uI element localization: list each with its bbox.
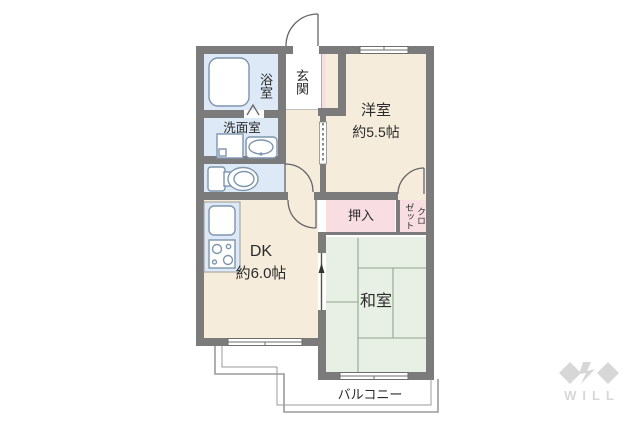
bath-door-gap: [244, 110, 264, 118]
wall-hall-west-bottom: [320, 164, 326, 192]
wall-dk-bottom-r: [302, 338, 326, 346]
entrance-label: 玄関: [288, 60, 310, 104]
brand-logo-text: WILL: [550, 388, 628, 403]
toilet-door-gap: [278, 164, 286, 192]
wall-dk-japanese-top: [318, 235, 326, 253]
wall-mid-h-left: [204, 192, 288, 200]
wall-entrance-left: [278, 46, 286, 164]
washroom-label: 洗面室: [204, 119, 280, 137]
wall-dk-bottom-l: [196, 338, 228, 346]
western-room-size: 約5.5帖: [326, 122, 426, 142]
wall-japanese-bottom-l: [318, 372, 340, 380]
floorplan-canvas: 浴室 洗面室 玄関 洋室 約5.5帖 押入 クロ ゼット DK 約6.0帖 和室…: [0, 0, 640, 427]
dk-label: DK 約6.0帖: [204, 240, 318, 285]
entrance-swing-door: [286, 14, 318, 46]
wall-right: [426, 46, 434, 380]
bath-label: 浴室: [252, 64, 274, 108]
wall-mid-h-right: [314, 192, 398, 200]
balcony-label: バルコニー: [300, 386, 440, 405]
hall-dk-door-gap: [288, 192, 314, 200]
dk-japanese-sliding-door: [319, 253, 325, 310]
western-room-top-window: [360, 47, 408, 54]
wall-oshiire-bottom-line: [318, 232, 426, 235]
wall-bath-bottom-l: [204, 110, 244, 118]
hallway: [286, 110, 320, 192]
room-toilet: [204, 164, 278, 192]
closet-door-gap: [398, 192, 426, 200]
dk-bottom-window: [228, 339, 302, 346]
brand-watermark: WILL: [550, 358, 628, 404]
japanese-room-bottom-window: [340, 373, 408, 380]
wall-washroom-bottom: [204, 156, 286, 164]
dk-name: DK: [204, 240, 318, 263]
brand-logo-mark: [550, 358, 628, 388]
wall-japanese-bottom-r: [408, 372, 434, 380]
western-room-label: 洋室 約5.5帖: [326, 100, 426, 142]
oshiire-label: 押入: [326, 207, 396, 226]
closet-label: クロ ゼット: [400, 201, 426, 231]
japanese-room-label: 和室: [326, 290, 426, 313]
dk-size: 約6.0帖: [204, 263, 318, 285]
western-room-name: 洋室: [326, 100, 426, 122]
wall-left: [196, 46, 204, 346]
